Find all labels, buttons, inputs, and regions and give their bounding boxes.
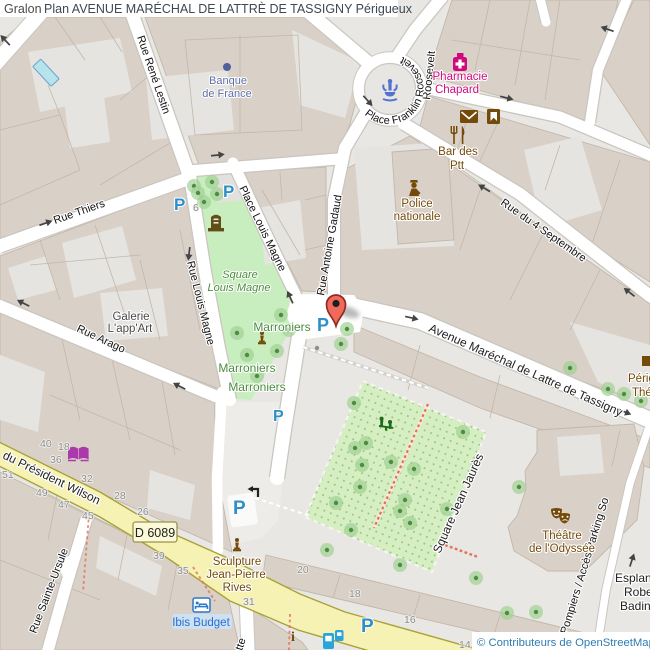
svg-text:de l'Odyssée: de l'Odyssée bbox=[529, 543, 595, 555]
svg-text:P: P bbox=[361, 616, 374, 637]
svg-text:Galerie: Galerie bbox=[112, 311, 149, 323]
svg-text:45: 45 bbox=[82, 510, 94, 522]
svg-text:Square: Square bbox=[222, 269, 257, 281]
svg-text:Plan AVENUE MARÉCHAL DE LATTRÈ: Plan AVENUE MARÉCHAL DE LATTRÈ DE TASSIG… bbox=[44, 1, 413, 16]
svg-text:31: 31 bbox=[243, 596, 255, 608]
svg-text:28: 28 bbox=[114, 490, 126, 502]
svg-text:49: 49 bbox=[36, 487, 48, 499]
svg-text:Théâtre: Théâtre bbox=[542, 530, 582, 542]
svg-text:Pharmacie: Pharmacie bbox=[433, 71, 488, 83]
svg-text:Jean-Pierre: Jean-Pierre bbox=[206, 569, 265, 581]
svg-text:6: 6 bbox=[193, 202, 199, 214]
svg-text:Gralon: Gralon bbox=[4, 2, 42, 16]
svg-text:Police: Police bbox=[401, 198, 432, 210]
svg-text:D 6089: D 6089 bbox=[135, 526, 175, 540]
svg-text:de France: de France bbox=[202, 88, 252, 100]
svg-text:Rives: Rives bbox=[223, 582, 252, 594]
svg-text:P: P bbox=[233, 498, 246, 519]
svg-text:39: 39 bbox=[153, 550, 165, 562]
svg-text:20: 20 bbox=[297, 564, 309, 576]
svg-text:Marroniers: Marroniers bbox=[253, 320, 310, 334]
svg-text:Banque: Banque bbox=[209, 75, 247, 87]
svg-text:14: 14 bbox=[459, 639, 471, 650]
svg-text:Ibis Budget: Ibis Budget bbox=[172, 617, 230, 629]
svg-text:47: 47 bbox=[58, 499, 70, 511]
svg-text:Sculpture: Sculpture bbox=[213, 556, 262, 568]
svg-text:36: 36 bbox=[50, 454, 62, 466]
svg-text:18: 18 bbox=[58, 441, 70, 453]
svg-text:Bar des: Bar des bbox=[438, 146, 478, 158]
svg-text:P: P bbox=[223, 182, 234, 201]
svg-text:51: 51 bbox=[2, 469, 14, 481]
svg-text:P: P bbox=[273, 408, 284, 425]
svg-text:Chapard: Chapard bbox=[435, 84, 479, 96]
svg-text:Badint: Badint bbox=[620, 599, 650, 613]
svg-text:P: P bbox=[317, 315, 329, 335]
svg-text:40: 40 bbox=[40, 438, 52, 450]
svg-text:Marroniers: Marroniers bbox=[218, 361, 275, 375]
svg-text:Louis Magne: Louis Magne bbox=[208, 282, 271, 294]
svg-text:26: 26 bbox=[137, 506, 149, 518]
svg-text:Thé: Thé bbox=[632, 387, 650, 399]
svg-text:© Contributeurs de OpenStreetM: © Contributeurs de OpenStreetMap bbox=[477, 637, 650, 649]
svg-text:L'app'Art: L'app'Art bbox=[108, 323, 153, 335]
svg-text:32: 32 bbox=[81, 473, 93, 485]
svg-text:Rober: Rober bbox=[624, 585, 650, 599]
svg-text:nationale: nationale bbox=[394, 211, 441, 223]
svg-text:Esplana: Esplana bbox=[615, 571, 650, 585]
svg-text:Ptt: Ptt bbox=[450, 160, 465, 172]
svg-text:P: P bbox=[174, 195, 185, 214]
svg-text:Marroniers: Marroniers bbox=[228, 380, 285, 394]
svg-text:16: 16 bbox=[404, 614, 416, 626]
svg-text:i: i bbox=[291, 630, 295, 645]
svg-text:Périg: Périg bbox=[628, 373, 650, 385]
svg-text:18: 18 bbox=[349, 588, 361, 600]
svg-text:35: 35 bbox=[177, 565, 189, 577]
